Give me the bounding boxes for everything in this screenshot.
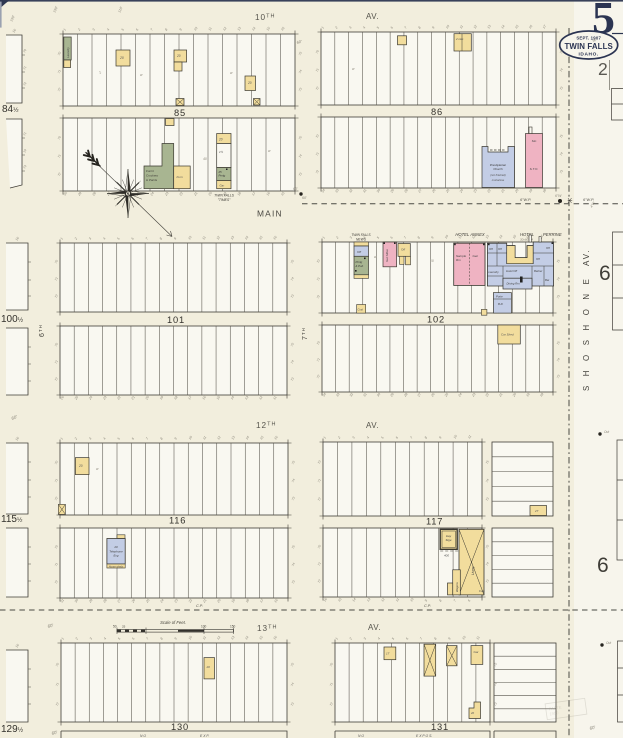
svg-text:400: 400 <box>444 554 449 558</box>
svg-text:130: 130 <box>171 722 189 732</box>
svg-text:Car Shed: Car Shed <box>501 333 514 337</box>
svg-text:6: 6 <box>597 554 609 577</box>
svg-text:(not finished): (not finished) <box>490 173 506 177</box>
svg-text:60': 60' <box>302 196 307 200</box>
svg-text:AV.: AV. <box>366 12 379 21</box>
svg-text:6"W.P.: 6"W.P. <box>520 198 531 202</box>
svg-text:Coal: Coal <box>358 308 364 312</box>
svg-text:mortarless: mortarless <box>492 178 505 182</box>
svg-text:150: 150 <box>230 625 236 629</box>
svg-text:MAIN: MAIN <box>257 209 283 219</box>
svg-text:131: 131 <box>431 722 449 732</box>
svg-text:Out: Out <box>606 641 611 645</box>
svg-text:40: 40 <box>203 157 207 161</box>
svg-text:PERRINE: PERRINE <box>543 232 562 237</box>
svg-text:2: 2 <box>598 59 608 79</box>
svg-text:Porte: Porte <box>496 295 503 299</box>
svg-text:117: 117 <box>426 517 443 527</box>
svg-text:116: 116 <box>169 516 186 526</box>
svg-text:1½: 1½ <box>219 150 224 154</box>
svg-text:6: 6 <box>599 262 611 285</box>
svg-text:27: 27 <box>534 509 539 513</box>
svg-text:E X P.: E X P. <box>200 734 209 738</box>
svg-text:"TIMES": "TIMES" <box>218 198 232 202</box>
svg-text:Prntg: Prntg <box>219 174 226 178</box>
svg-text:IDAHO.: IDAHO. <box>579 51 599 57</box>
svg-text:20: 20 <box>113 545 118 549</box>
svg-text:20: 20 <box>78 464 83 468</box>
svg-text:Gen: Gen <box>473 254 479 258</box>
svg-text:HOTEL: HOTEL <box>520 232 535 237</box>
svg-text:17: 17 <box>386 652 390 656</box>
svg-text:10: 10 <box>430 259 434 263</box>
svg-text:Livery: Livery <box>471 566 475 575</box>
svg-text:6"W: 6"W <box>555 194 562 198</box>
svg-text:Wagons: Wagons <box>455 582 459 592</box>
svg-text:Coal: Coal <box>479 589 485 593</box>
svg-text:Hotel Off: Hotel Off <box>506 269 518 273</box>
svg-text:Sto: Sto <box>532 139 537 143</box>
svg-text:Dining Rm: Dining Rm <box>507 282 521 286</box>
svg-text:102: 102 <box>427 315 445 325</box>
svg-text:20: 20 <box>218 138 223 142</box>
svg-text:NEWS: NEWS <box>356 237 367 241</box>
svg-text:20: 20 <box>470 711 475 715</box>
svg-text:Furn: Furn <box>177 175 184 179</box>
svg-text:N O: N O <box>140 734 146 738</box>
svg-text:& Pub: & Pub <box>356 264 364 268</box>
svg-text:85: 85 <box>174 108 186 118</box>
svg-text:20: 20 <box>247 81 252 85</box>
svg-text:AV.: AV. <box>582 248 591 266</box>
svg-text:Laundry: Laundry <box>66 47 70 58</box>
svg-text:Horse sheds: Horse sheds <box>109 564 124 568</box>
svg-text:Laundry: Laundry <box>489 270 500 274</box>
svg-text:20: 20 <box>176 54 181 58</box>
svg-text:Crockery: Crockery <box>146 174 159 178</box>
svg-text:C.P.: C.P. <box>196 604 203 608</box>
svg-text:50: 50 <box>113 625 117 629</box>
svg-text:25: 25 <box>122 625 126 629</box>
svg-text:B.R.: B.R. <box>498 302 504 306</box>
svg-text:20: 20 <box>119 56 124 60</box>
svg-text:S.T.O.: S.T.O. <box>530 167 539 171</box>
svg-text:60': 60' <box>293 187 298 191</box>
svg-text:TWIN FALLS: TWIN FALLS <box>565 42 613 51</box>
svg-text:AV.: AV. <box>368 623 381 632</box>
svg-text:Gen Mdse: Gen Mdse <box>385 249 389 262</box>
svg-text:101: 101 <box>167 315 185 325</box>
svg-text:Stge: Stge <box>446 538 452 542</box>
svg-text:AV.: AV. <box>366 421 379 430</box>
svg-text:Furnit: Furnit <box>146 169 154 173</box>
svg-text:Exg: Exg <box>114 554 119 558</box>
svg-text:C.P.: C.P. <box>424 604 431 608</box>
svg-text:100: 100 <box>201 625 207 629</box>
svg-text:HOTEL ANNEX: HOTEL ANNEX <box>455 232 485 237</box>
svg-text:SEPT. 1907: SEPT. 1907 <box>576 36 601 41</box>
svg-text:Barber: Barber <box>534 269 543 273</box>
svg-text:Church: Church <box>493 167 503 171</box>
svg-text:Rm: Rm <box>456 258 461 262</box>
svg-text:Scale of Feet.: Scale of Feet. <box>160 620 186 625</box>
svg-text:2 Har.: 2 Har. <box>455 37 464 41</box>
svg-text:N O: N O <box>358 734 364 738</box>
svg-text:SHOSHONE: SHOSHONE <box>582 270 591 391</box>
svg-text:Out: Out <box>604 430 609 434</box>
svg-text:86: 86 <box>431 107 443 117</box>
svg-text:E X P O S.: E X P O S. <box>416 734 432 738</box>
svg-text:20: 20 <box>206 665 211 669</box>
svg-text:& Paints: & Paints <box>146 178 158 182</box>
